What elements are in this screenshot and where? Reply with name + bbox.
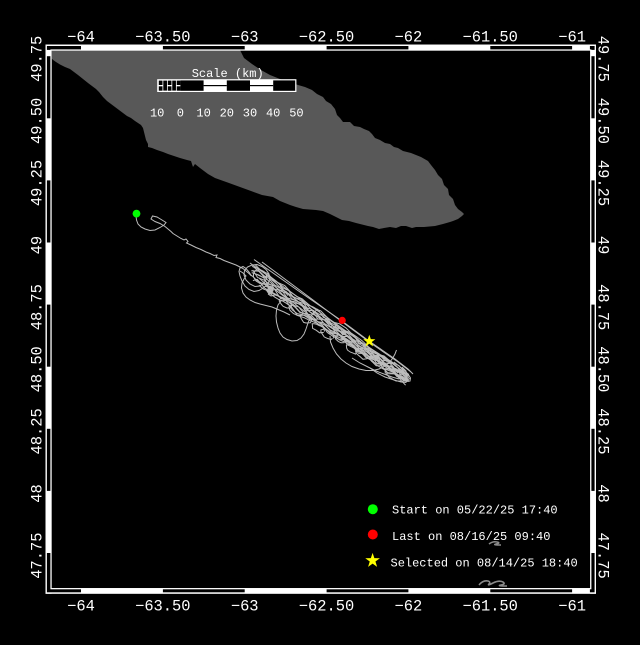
svg-text:−63.50: −63.50 <box>135 597 190 615</box>
svg-text:47.75: 47.75 <box>28 533 46 579</box>
svg-text:−61.50: −61.50 <box>462 29 517 47</box>
svg-text:50: 50 <box>289 106 303 120</box>
svg-text:48.25: 48.25 <box>593 408 611 454</box>
svg-text:20: 20 <box>220 106 234 120</box>
svg-text:−63: −63 <box>231 597 259 615</box>
svg-text:10: 10 <box>150 106 164 120</box>
svg-text:−62: −62 <box>395 597 423 615</box>
svg-text:10: 10 <box>196 106 210 120</box>
svg-text:49.25: 49.25 <box>28 160 46 206</box>
svg-text:−63.50: −63.50 <box>135 29 190 47</box>
svg-text:−62.50: −62.50 <box>299 597 354 615</box>
svg-text:−64: −64 <box>67 29 95 47</box>
svg-text:40: 40 <box>266 106 280 120</box>
svg-text:48.75: 48.75 <box>593 284 611 330</box>
svg-text:49.75: 49.75 <box>28 36 46 82</box>
svg-text:48.25: 48.25 <box>28 408 46 454</box>
svg-text:Start on 05/22/25 17:40: Start on 05/22/25 17:40 <box>392 504 558 518</box>
svg-text:−61.50: −61.50 <box>462 597 517 615</box>
svg-text:49: 49 <box>593 236 611 254</box>
svg-text:48.50: 48.50 <box>28 346 46 392</box>
svg-text:Scale (km): Scale (km) <box>192 67 264 81</box>
svg-text:49: 49 <box>28 236 46 254</box>
svg-text:−62: −62 <box>395 29 423 47</box>
svg-text:49.50: 49.50 <box>28 98 46 144</box>
svg-text:−61: −61 <box>558 29 586 47</box>
svg-text:48.50: 48.50 <box>593 346 611 392</box>
svg-text:0: 0 <box>177 106 184 120</box>
svg-text:48: 48 <box>593 484 611 502</box>
svg-text:48.75: 48.75 <box>28 284 46 330</box>
svg-text:−63: −63 <box>231 29 259 47</box>
svg-text:Selected on 08/14/25 18:40: Selected on 08/14/25 18:40 <box>391 557 578 571</box>
svg-text:Last on 08/16/25 09:40: Last on 08/16/25 09:40 <box>392 530 550 544</box>
svg-text:−62.50: −62.50 <box>299 29 354 47</box>
svg-text:49.25: 49.25 <box>593 160 611 206</box>
svg-text:49.50: 49.50 <box>593 98 611 144</box>
svg-text:48: 48 <box>28 484 46 502</box>
svg-text:−61: −61 <box>558 597 586 615</box>
svg-text:−64: −64 <box>67 597 95 615</box>
svg-text:49.75: 49.75 <box>593 36 611 82</box>
svg-text:30: 30 <box>243 106 257 120</box>
svg-text:47.75: 47.75 <box>593 533 611 579</box>
